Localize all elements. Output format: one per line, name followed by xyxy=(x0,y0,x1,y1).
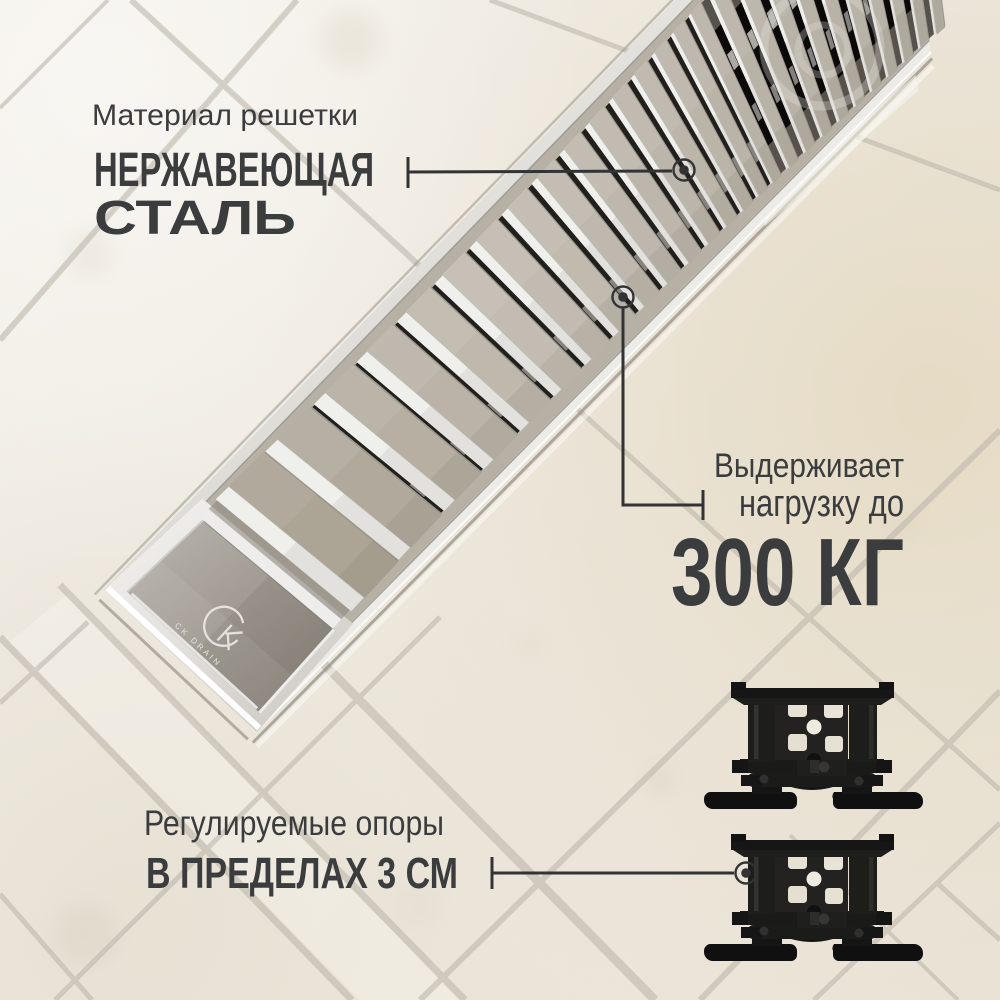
svg-text:В ПРЕДЕЛАХ 3 СМ: В ПРЕДЕЛАХ 3 СМ xyxy=(146,849,458,898)
svg-text:НЕРЖАВЕЮЩАЯ: НЕРЖАВЕЮЩАЯ xyxy=(94,144,374,197)
svg-text:Выдерживает: Выдерживает xyxy=(714,447,904,485)
svg-text:Регулируемые опоры: Регулируемые опоры xyxy=(144,804,444,843)
svg-text:СТАЛЬ: СТАЛЬ xyxy=(94,192,296,245)
svg-text:Материал решетки: Материал решетки xyxy=(92,99,358,132)
svg-text:300 КГ: 300 КГ xyxy=(671,519,904,626)
